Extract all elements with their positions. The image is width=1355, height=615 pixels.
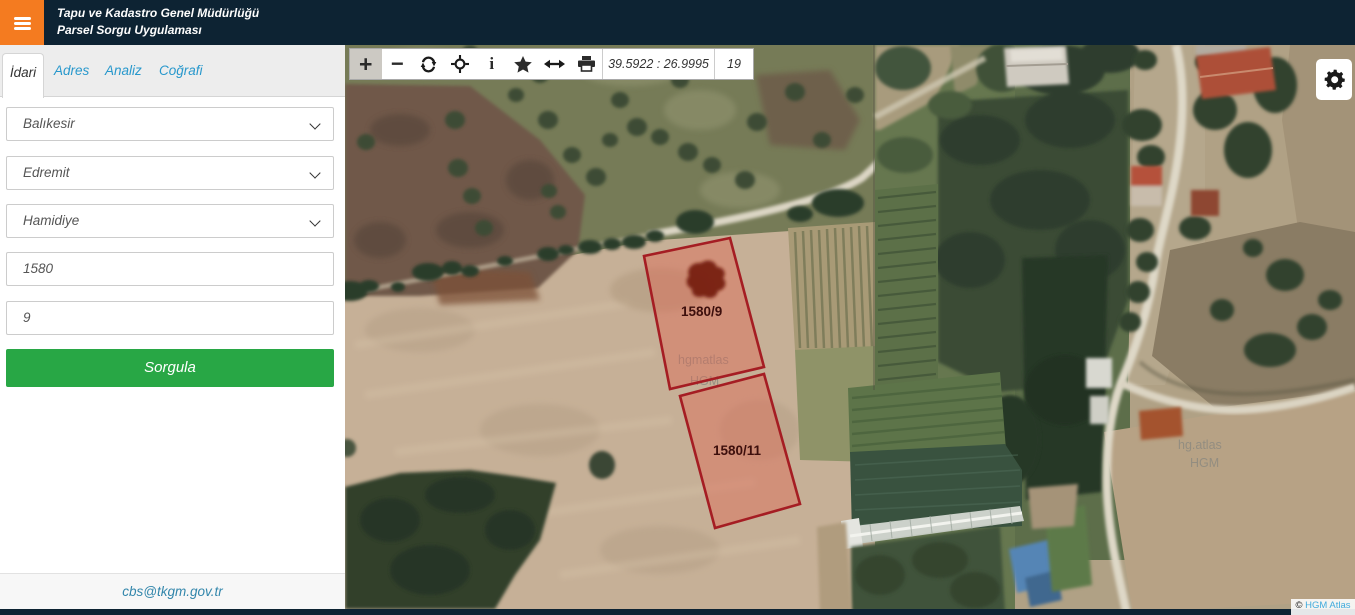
- svg-text:1580/11: 1580/11: [713, 443, 762, 458]
- svg-text:1580/9: 1580/9: [681, 304, 722, 319]
- svg-text:hg.atlas: hg.atlas: [1178, 438, 1222, 452]
- svg-text:HGM: HGM: [1190, 456, 1219, 470]
